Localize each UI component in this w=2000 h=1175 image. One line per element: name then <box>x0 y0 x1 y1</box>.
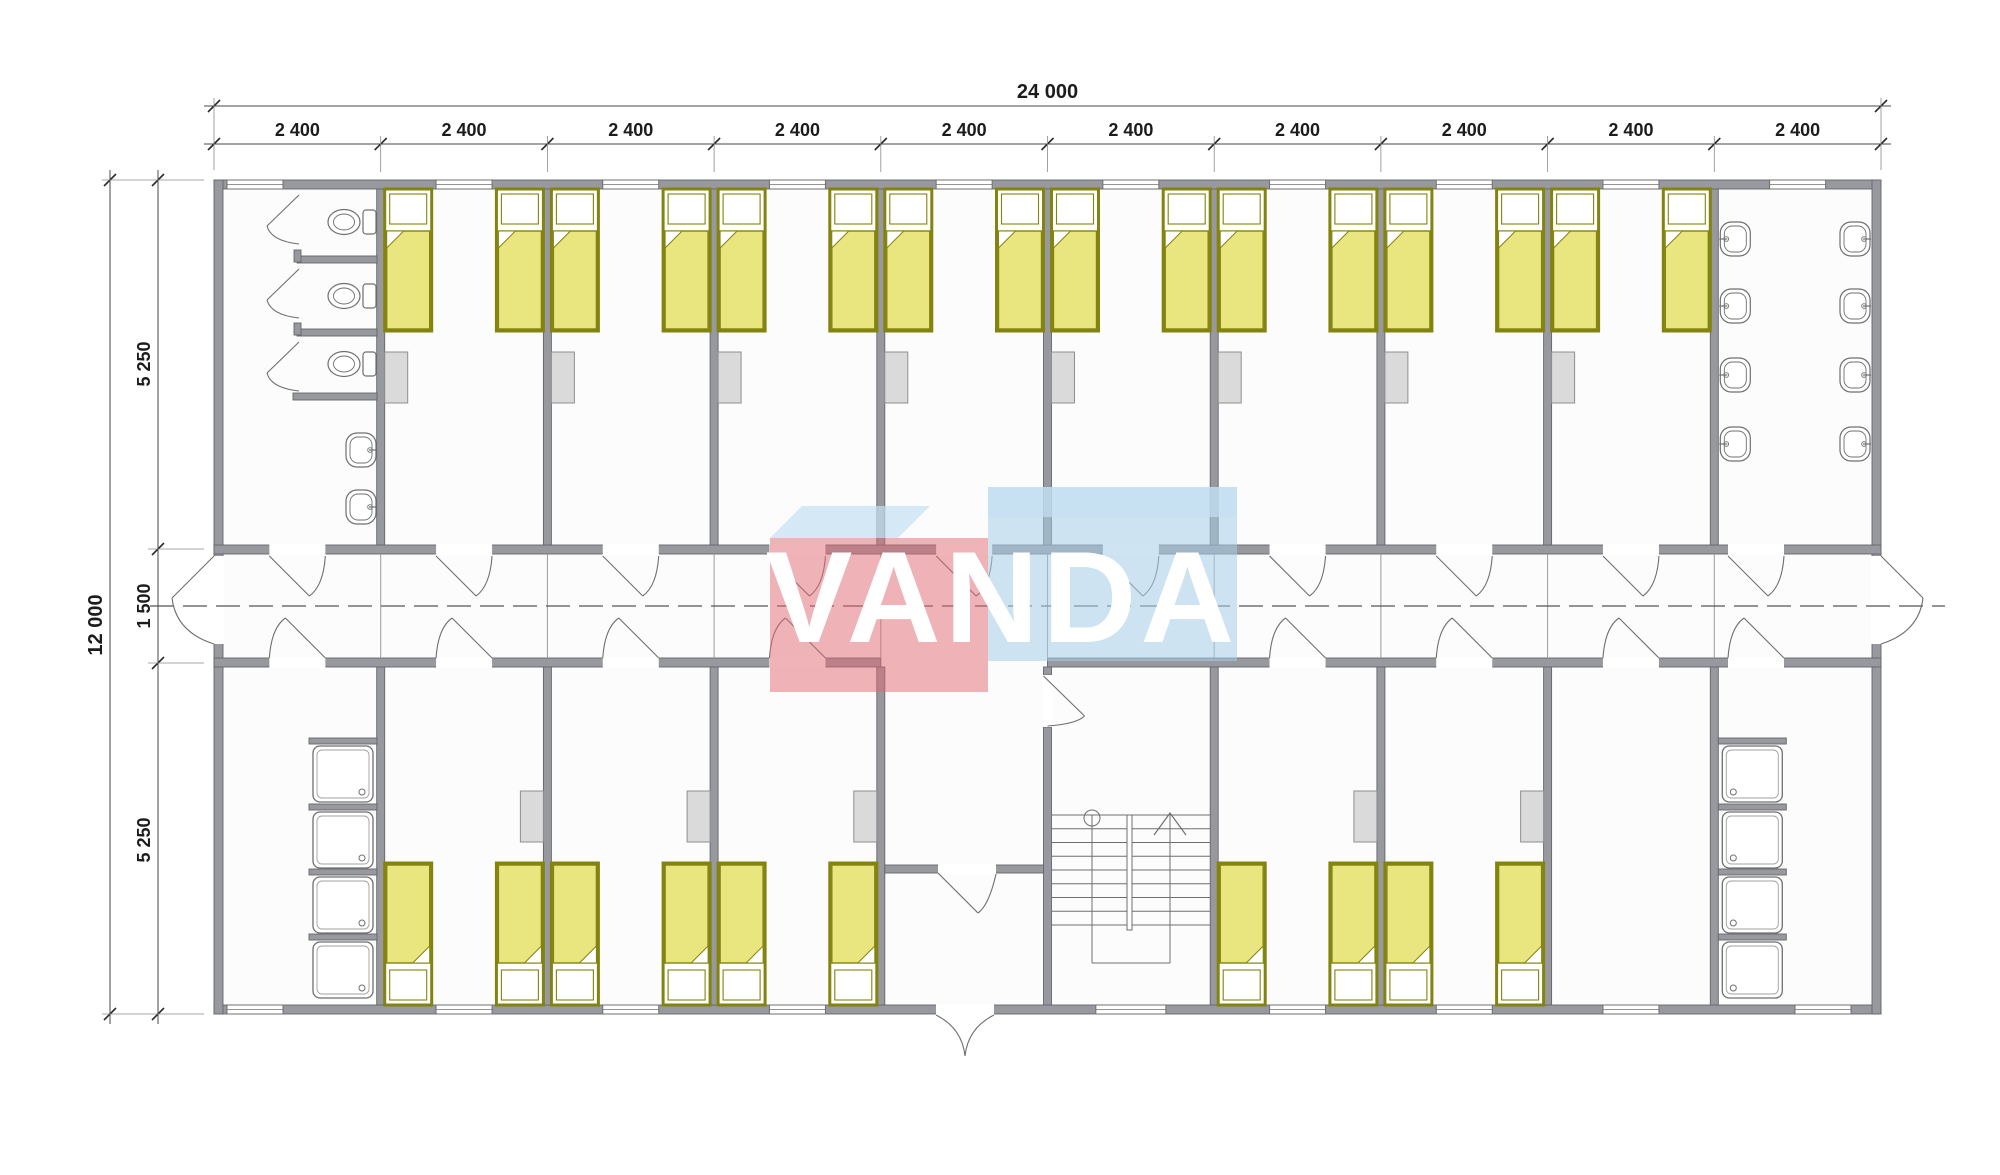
window <box>436 180 492 189</box>
dimension-label: 2 400 <box>1608 120 1653 140</box>
watermark: VANDA <box>766 487 1239 692</box>
bed <box>551 189 598 331</box>
wash-basin <box>1840 289 1871 323</box>
dimension-label: 12 000 <box>85 594 107 655</box>
bed <box>997 189 1044 331</box>
wardrobe <box>1552 352 1575 403</box>
wardrobe <box>854 791 877 842</box>
dimension-label: 24 000 <box>1017 81 1078 103</box>
door-swing <box>172 556 214 644</box>
wardrobe <box>385 352 408 403</box>
floor-plan: 24 0002 4002 4002 4002 4002 4002 4002 40… <box>0 0 2000 1175</box>
wardrobe <box>1052 352 1075 403</box>
dimension-label: 2 400 <box>942 120 987 140</box>
bed <box>1385 189 1432 331</box>
window <box>603 1005 659 1014</box>
wash-basin <box>346 433 377 467</box>
dimension-label: 5 250 <box>134 341 154 386</box>
window <box>1603 180 1659 189</box>
wash-basin <box>1719 289 1750 323</box>
wardrobe <box>1218 352 1241 403</box>
door-swing <box>1881 556 1923 644</box>
watermark-text: VANDA <box>766 524 1239 670</box>
dimension-label: 2 400 <box>608 120 653 140</box>
bed <box>1385 863 1432 1005</box>
wardrobe <box>520 791 543 842</box>
window <box>1096 1005 1166 1014</box>
bed <box>385 189 432 331</box>
shower-tray <box>313 812 373 868</box>
bed <box>1163 189 1210 331</box>
bed <box>1330 189 1377 331</box>
shower-tray <box>1722 942 1782 998</box>
toilet <box>328 284 376 309</box>
door-swing <box>936 1015 994 1056</box>
wardrobe <box>1521 791 1544 842</box>
shower-tray <box>1722 746 1782 802</box>
dimension-label: 2 400 <box>775 120 820 140</box>
floorplan-page: 24 0002 4002 4002 4002 4002 4002 4002 40… <box>0 0 2000 1175</box>
wash-basin <box>346 490 377 524</box>
wardrobe <box>718 352 741 403</box>
wardrobe <box>885 352 908 403</box>
wardrobe <box>1354 791 1377 842</box>
wash-basin <box>1719 358 1750 392</box>
bed <box>1497 863 1544 1005</box>
dimension-label: 2 400 <box>442 120 487 140</box>
shower-tray <box>1722 877 1782 933</box>
bed <box>1552 189 1599 331</box>
window <box>1436 1005 1492 1014</box>
wardrobe <box>551 352 574 403</box>
wardrobe <box>687 791 710 842</box>
window <box>1795 1005 1851 1014</box>
window <box>1436 180 1492 189</box>
bed <box>1052 189 1099 331</box>
window <box>227 1005 283 1014</box>
dimension-label: 2 400 <box>1275 120 1320 140</box>
bed <box>1663 189 1710 331</box>
wash-basin <box>1840 427 1871 461</box>
shower-tray <box>1722 812 1782 868</box>
bed <box>496 863 543 1005</box>
dimension-label: 2 400 <box>275 120 320 140</box>
bed <box>1218 863 1265 1005</box>
window <box>1270 1005 1326 1014</box>
dimension-label: 2 400 <box>1775 120 1820 140</box>
bed <box>385 863 432 1005</box>
window <box>1103 180 1159 189</box>
bed <box>830 189 877 331</box>
wash-basin <box>1840 358 1871 392</box>
bed <box>885 189 932 331</box>
window <box>769 180 825 189</box>
bed <box>496 189 543 331</box>
bed <box>551 863 598 1005</box>
bed <box>830 863 877 1005</box>
wash-basin <box>1719 427 1750 461</box>
dimension-label: 2 400 <box>1442 120 1487 140</box>
shower-tray <box>313 746 373 802</box>
toilet <box>328 210 376 235</box>
toilet <box>328 352 376 377</box>
bed <box>718 863 765 1005</box>
shower-tray <box>313 877 373 933</box>
wash-basin <box>1719 222 1750 256</box>
window <box>227 180 283 189</box>
bed <box>1218 189 1265 331</box>
window <box>1770 180 1826 189</box>
window <box>1270 180 1326 189</box>
window <box>769 1005 825 1014</box>
bed <box>718 189 765 331</box>
window <box>603 180 659 189</box>
bed <box>1330 863 1377 1005</box>
bed <box>663 863 710 1005</box>
window <box>936 180 992 189</box>
window <box>436 1005 492 1014</box>
dimension-label: 5 250 <box>134 817 154 862</box>
dimension-label: 2 400 <box>1108 120 1153 140</box>
wash-basin <box>1840 222 1871 256</box>
bed <box>1497 189 1544 331</box>
bed <box>663 189 710 331</box>
shower-tray <box>313 942 373 998</box>
window <box>1603 1005 1659 1014</box>
watermark-blue-roof <box>988 487 1237 517</box>
wardrobe <box>1385 352 1408 403</box>
dimension-label: 1 500 <box>134 583 154 628</box>
